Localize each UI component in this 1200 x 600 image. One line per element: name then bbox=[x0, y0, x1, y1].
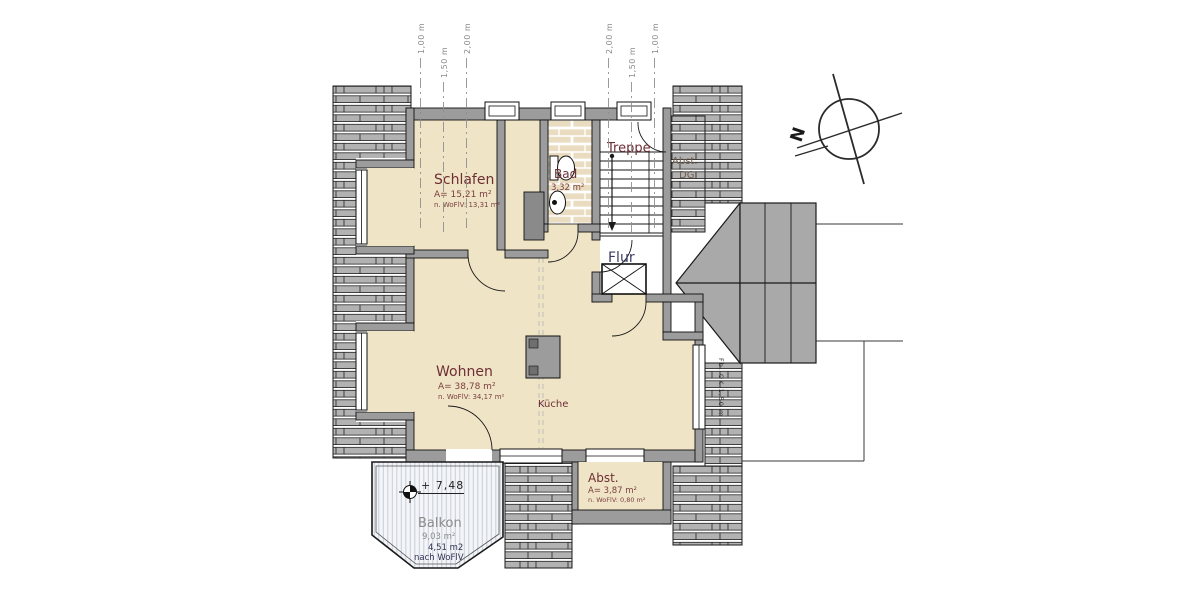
label-bad: Bad bbox=[554, 167, 577, 181]
right-corner-patch bbox=[671, 302, 695, 332]
roof-strip-right-bottom bbox=[673, 466, 742, 545]
height-label-right-1: 2,00 m bbox=[605, 23, 614, 54]
floor-plan-image: Schlafen A= 15,21 m² n. WoFlV: 13,31 m² … bbox=[0, 0, 1200, 600]
building bbox=[356, 102, 705, 463]
label-treppe: Treppe bbox=[606, 141, 651, 156]
level-value: + 7,48 bbox=[421, 479, 464, 492]
roof-window-3 bbox=[617, 102, 651, 120]
shaft-box bbox=[602, 264, 646, 294]
label-balkon-note: nach WoFlV bbox=[414, 553, 464, 563]
height-label-right-2: 1,50 m bbox=[628, 47, 637, 78]
duct-block bbox=[524, 192, 544, 240]
height-label-left-1: 1,00 m bbox=[417, 23, 426, 54]
height-label-left-2: 1,50 m bbox=[440, 47, 449, 78]
label-balkon-area: 9,03 m² bbox=[422, 532, 455, 542]
label-balkon: Balkon bbox=[418, 516, 462, 531]
window-dormer-2 bbox=[356, 333, 367, 410]
label-abst-wofl: n. WoFlV: 0,80 m² bbox=[588, 496, 646, 504]
roof-window-2 bbox=[551, 102, 585, 120]
label-abst: Abst. bbox=[588, 471, 619, 485]
height-label-right-3: 1,00 m bbox=[651, 23, 660, 54]
floor-plan-canvas: Schlafen A= 15,21 m² n. WoFlV: 13,31 m² … bbox=[0, 0, 1200, 600]
roof-window-1 bbox=[485, 102, 519, 120]
label-wohnen-wofl: n. WoFlV: 34,17 m² bbox=[438, 393, 505, 401]
label-flur: Flur bbox=[608, 250, 635, 266]
label-balkon-area2: 4,51 m2 bbox=[428, 543, 463, 553]
dormer2-interior bbox=[367, 331, 414, 412]
label-abst-dg-2: DG bbox=[679, 170, 694, 181]
label-wohnen: Wohnen bbox=[436, 364, 493, 380]
window-south-abst bbox=[586, 449, 644, 463]
roof-strip-bottom-center bbox=[505, 462, 572, 568]
window-south-wohnen bbox=[500, 449, 562, 463]
edge-note: Fb. OK 1,50 m bbox=[717, 358, 725, 417]
label-abst-dg-1: Abst. bbox=[672, 156, 698, 167]
sink bbox=[550, 191, 566, 214]
label-abst-area: A= 3,87 m² bbox=[588, 486, 637, 496]
label-bad-area: 3,32 m² bbox=[551, 183, 584, 193]
label-kueche: Küche bbox=[538, 399, 568, 410]
window-dormer-1 bbox=[356, 170, 367, 244]
kitchen-counter bbox=[526, 336, 560, 378]
height-label-left-3: 2,00 m bbox=[463, 23, 472, 54]
compass-north-label: N bbox=[787, 125, 810, 145]
compass-icon: N bbox=[787, 74, 902, 184]
dormer1-interior bbox=[367, 168, 414, 246]
label-schlafen-area: A= 15,21 m² bbox=[434, 190, 492, 200]
window-east bbox=[693, 345, 705, 429]
label-wohnen-area: A= 38,78 m² bbox=[438, 382, 496, 392]
label-schlafen-wofl: n. WoFlV: 13,31 m² bbox=[434, 201, 501, 209]
balcony-door-opening bbox=[446, 449, 492, 463]
